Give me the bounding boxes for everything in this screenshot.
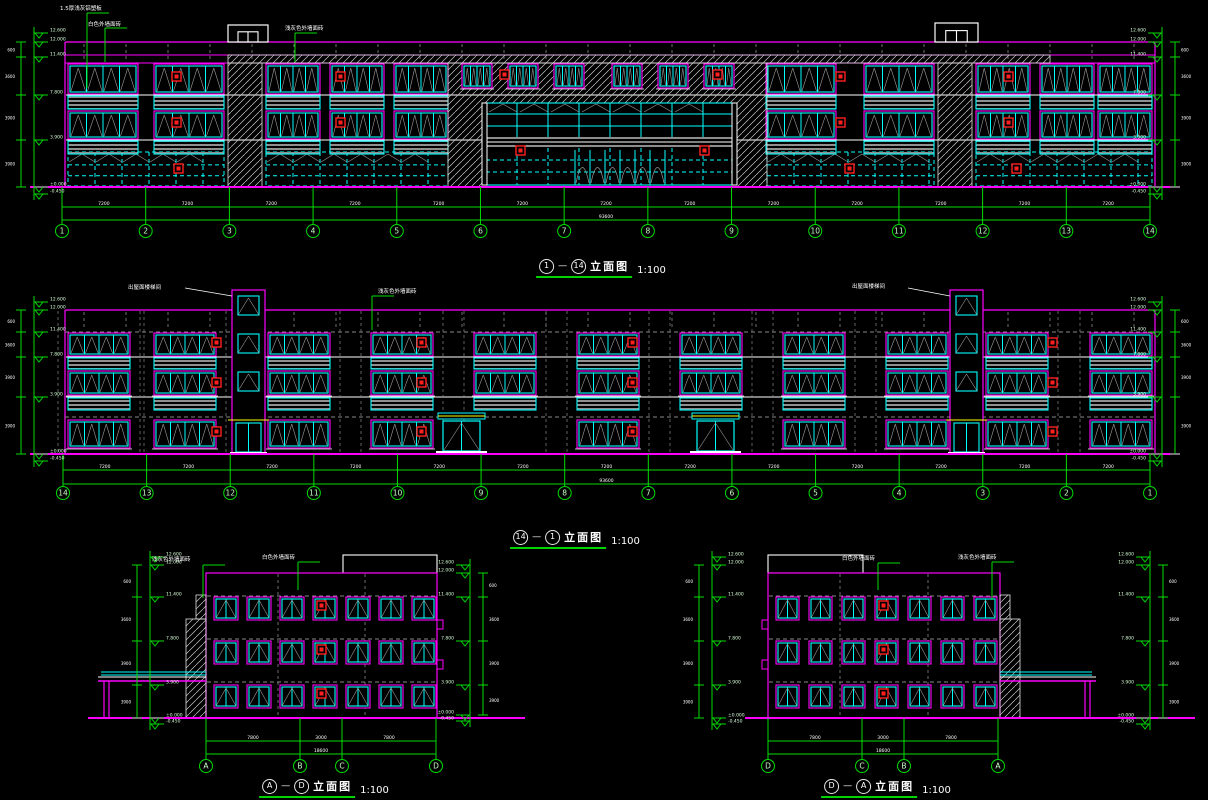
svg-text:3.900: 3.900 <box>1133 135 1146 141</box>
svg-text:7800: 7800 <box>809 735 821 741</box>
axis-bubble: 1 <box>539 259 554 274</box>
svg-text:600: 600 <box>1181 319 1189 324</box>
svg-text:-0.450: -0.450 <box>1131 189 1146 195</box>
svg-text:11.400: 11.400 <box>50 327 66 333</box>
svg-text:±0.000: ±0.000 <box>437 710 454 716</box>
svg-text:12.600: 12.600 <box>438 560 454 566</box>
svg-text:600: 600 <box>7 48 15 53</box>
svg-text:3600: 3600 <box>5 343 16 348</box>
svg-text:14: 14 <box>58 489 68 498</box>
svg-text:7200: 7200 <box>768 464 780 470</box>
svg-text:A: A <box>995 762 1001 771</box>
svg-text:-0.450: -0.450 <box>439 716 454 722</box>
svg-text:3900: 3900 <box>1169 700 1180 705</box>
elev1-title: 1 — 14 立面图 1:100 <box>536 258 666 278</box>
svg-text:3.900: 3.900 <box>441 680 454 686</box>
svg-text:3900: 3900 <box>5 116 16 121</box>
svg-text:7.800: 7.800 <box>1133 90 1146 96</box>
svg-text:±0.000: ±0.000 <box>50 449 67 455</box>
elevation-scale: 1:100 <box>360 785 389 798</box>
svg-text:±0.000: ±0.000 <box>166 713 183 719</box>
svg-text:±0.000: ±0.000 <box>1129 449 1146 455</box>
svg-text:600: 600 <box>123 579 131 584</box>
svg-text:C: C <box>339 762 344 771</box>
title-dash: — <box>281 781 290 791</box>
elev4-title-underlined: D — A 立面图 <box>821 778 917 798</box>
elev1-title-underlined: 1 — 14 立面图 <box>536 258 632 278</box>
svg-text:-0.450: -0.450 <box>50 189 65 195</box>
svg-text:3: 3 <box>227 227 232 236</box>
axis-bubble: D <box>294 779 309 794</box>
svg-text:3.900: 3.900 <box>166 680 179 686</box>
svg-text:12.600: 12.600 <box>50 28 66 34</box>
svg-text:11: 11 <box>309 489 319 498</box>
svg-text:7.800: 7.800 <box>166 636 179 642</box>
svg-text:7200: 7200 <box>266 201 278 207</box>
svg-text:10: 10 <box>393 489 403 498</box>
svg-text:18600: 18600 <box>876 748 890 754</box>
svg-text:12.000: 12.000 <box>50 305 66 311</box>
svg-text:11.400: 11.400 <box>50 52 66 58</box>
svg-text:7200: 7200 <box>851 201 863 207</box>
svg-text:7800: 7800 <box>383 735 395 741</box>
elevation-scale: 1:100 <box>922 785 951 798</box>
svg-text:3900: 3900 <box>489 698 500 703</box>
svg-text:3600: 3600 <box>1181 343 1192 348</box>
axis-bubble: A <box>856 779 871 794</box>
svg-text:-0.450: -0.450 <box>166 719 181 725</box>
svg-text:9: 9 <box>729 227 734 236</box>
svg-text:浅灰色外墙面砖: 浅灰色外墙面砖 <box>285 24 324 32</box>
svg-text:7.800: 7.800 <box>1121 636 1134 642</box>
svg-text:3900: 3900 <box>1181 162 1192 167</box>
svg-text:3900: 3900 <box>5 375 16 380</box>
svg-text:4: 4 <box>897 489 902 498</box>
svg-text:7200: 7200 <box>1102 464 1114 470</box>
svg-text:9: 9 <box>479 489 484 498</box>
svg-text:600: 600 <box>489 583 497 588</box>
svg-text:浅灰色外墙面砖: 浅灰色外墙面砖 <box>152 555 191 563</box>
svg-text:7200: 7200 <box>434 464 446 470</box>
svg-text:7.800: 7.800 <box>728 636 741 642</box>
svg-text:3900: 3900 <box>5 162 16 167</box>
svg-text:600: 600 <box>7 319 15 324</box>
svg-text:11.400: 11.400 <box>1130 327 1146 333</box>
svg-text:浅灰色外墙面砖: 浅灰色外墙面砖 <box>958 553 997 561</box>
svg-text:18600: 18600 <box>314 748 328 754</box>
svg-text:3600: 3600 <box>1169 617 1180 622</box>
svg-text:D: D <box>433 762 439 771</box>
svg-text:12.000: 12.000 <box>728 560 744 566</box>
elev3-title-underlined: A — D 立面图 <box>259 778 355 798</box>
svg-text:7200: 7200 <box>183 464 195 470</box>
svg-text:7.800: 7.800 <box>50 352 63 358</box>
elevation-d-a: DCBA7800300078001860012.60012.00011.4007… <box>683 551 1195 773</box>
svg-text:12.000: 12.000 <box>1130 37 1146 43</box>
elevation-caption: 立面图 <box>313 778 352 794</box>
elev3-title: A — D 立面图 1:100 <box>259 778 389 798</box>
elev4-title: D — A 立面图 1:100 <box>821 778 951 798</box>
svg-text:出屋面楼梯间: 出屋面楼梯间 <box>128 283 161 291</box>
svg-text:3900: 3900 <box>1169 661 1180 666</box>
svg-text:-0.450: -0.450 <box>1131 456 1146 462</box>
svg-text:12.600: 12.600 <box>728 552 744 558</box>
svg-text:7800: 7800 <box>247 735 259 741</box>
svg-text:3600: 3600 <box>5 74 16 79</box>
svg-text:7200: 7200 <box>349 201 361 207</box>
svg-text:7.800: 7.800 <box>1133 352 1146 358</box>
elevation-14-1: 1413121110987654321720072007200720072007… <box>5 282 1192 500</box>
svg-text:C: C <box>859 762 864 771</box>
elev2-title-underlined: 14 — 1 立面图 <box>510 529 606 549</box>
svg-text:12.000: 12.000 <box>438 568 454 574</box>
svg-text:7200: 7200 <box>517 464 529 470</box>
svg-text:93600: 93600 <box>599 214 613 220</box>
svg-text:12.000: 12.000 <box>1118 560 1134 566</box>
svg-text:3600: 3600 <box>121 617 132 622</box>
axis-bubble: A <box>262 779 277 794</box>
svg-text:1: 1 <box>1148 489 1153 498</box>
elevation-scale: 1:100 <box>611 536 640 549</box>
svg-text:6: 6 <box>478 227 483 236</box>
svg-text:8: 8 <box>562 489 567 498</box>
svg-text:3000: 3000 <box>877 735 889 741</box>
svg-text:7200: 7200 <box>600 201 612 207</box>
svg-text:11.400: 11.400 <box>438 592 454 598</box>
svg-text:12.000: 12.000 <box>1130 305 1146 311</box>
svg-text:3900: 3900 <box>5 424 16 429</box>
axis-bubble: 14 <box>571 259 586 274</box>
svg-text:-0.450: -0.450 <box>50 456 65 462</box>
svg-text:8: 8 <box>645 227 650 236</box>
svg-text:7200: 7200 <box>350 464 362 470</box>
svg-text:12: 12 <box>978 227 988 236</box>
svg-text:3900: 3900 <box>121 700 132 705</box>
svg-text:12.600: 12.600 <box>1118 552 1134 558</box>
svg-text:3900: 3900 <box>1181 375 1192 380</box>
svg-text:D: D <box>765 762 771 771</box>
svg-text:7200: 7200 <box>684 464 696 470</box>
svg-text:7200: 7200 <box>852 464 864 470</box>
svg-text:5: 5 <box>394 227 399 236</box>
svg-text:4: 4 <box>311 227 316 236</box>
svg-text:7200: 7200 <box>98 201 110 207</box>
svg-text:3900: 3900 <box>683 700 694 705</box>
svg-text:7200: 7200 <box>266 464 278 470</box>
svg-text:3.900: 3.900 <box>50 135 63 141</box>
svg-text:±0.000: ±0.000 <box>1117 713 1134 719</box>
svg-text:7800: 7800 <box>945 735 957 741</box>
elevation-1-14: 1234567891011121314720072007200720072007… <box>5 4 1192 238</box>
svg-text:3900: 3900 <box>683 661 694 666</box>
svg-text:600: 600 <box>685 579 693 584</box>
svg-text:1.5厚浅灰铝塑板: 1.5厚浅灰铝塑板 <box>60 4 102 12</box>
svg-text:白色外墙面砖: 白色外墙面砖 <box>88 20 122 28</box>
svg-text:11.400: 11.400 <box>1130 52 1146 58</box>
svg-text:7200: 7200 <box>517 201 529 207</box>
svg-text:7200: 7200 <box>1102 201 1114 207</box>
svg-text:B: B <box>901 762 906 771</box>
svg-text:±0.000: ±0.000 <box>1129 182 1146 188</box>
svg-text:浅灰色外墙面砖: 浅灰色外墙面砖 <box>378 287 417 295</box>
svg-text:3900: 3900 <box>489 661 500 666</box>
svg-text:11.400: 11.400 <box>166 592 182 598</box>
svg-text:3600: 3600 <box>1181 74 1192 79</box>
svg-text:3900: 3900 <box>1181 116 1192 121</box>
svg-text:7200: 7200 <box>182 201 194 207</box>
svg-text:7200: 7200 <box>768 201 780 207</box>
svg-text:7200: 7200 <box>601 464 613 470</box>
svg-text:7: 7 <box>646 489 651 498</box>
title-dash: — <box>843 781 852 791</box>
svg-text:2: 2 <box>1064 489 1069 498</box>
axis-bubble: 1 <box>545 530 560 545</box>
svg-text:12.600: 12.600 <box>1130 28 1146 34</box>
svg-text:3.900: 3.900 <box>728 680 741 686</box>
svg-text:7200: 7200 <box>935 201 947 207</box>
svg-text:5: 5 <box>813 489 818 498</box>
svg-text:3900: 3900 <box>1181 424 1192 429</box>
svg-text:11.400: 11.400 <box>728 592 744 598</box>
svg-text:±0.000: ±0.000 <box>728 713 745 719</box>
elevation-drawing: 1234567891011121314720072007200720072007… <box>0 0 1208 800</box>
svg-text:出屋面楼梯间: 出屋面楼梯间 <box>852 282 885 290</box>
svg-text:7: 7 <box>562 227 567 236</box>
svg-text:3600: 3600 <box>489 617 500 622</box>
svg-text:7200: 7200 <box>99 464 111 470</box>
svg-text:7200: 7200 <box>433 201 445 207</box>
svg-text:6: 6 <box>730 489 735 498</box>
svg-text:12.000: 12.000 <box>50 37 66 43</box>
svg-text:3600: 3600 <box>683 617 694 622</box>
svg-text:7.800: 7.800 <box>441 636 454 642</box>
svg-text:7200: 7200 <box>935 464 947 470</box>
svg-text:7.800: 7.800 <box>50 90 63 96</box>
svg-text:13: 13 <box>1062 227 1072 236</box>
elev2-title: 14 — 1 立面图 1:100 <box>510 529 640 549</box>
axis-bubble: D <box>824 779 839 794</box>
svg-text:3000: 3000 <box>315 735 327 741</box>
elevation-caption: 立面图 <box>875 778 914 794</box>
svg-text:11.400: 11.400 <box>1118 592 1134 598</box>
svg-text:12: 12 <box>225 489 235 498</box>
svg-text:3: 3 <box>980 489 985 498</box>
svg-text:3.900: 3.900 <box>1121 680 1134 686</box>
svg-text:白色外墙面砖: 白色外墙面砖 <box>842 554 876 562</box>
title-dash: — <box>558 261 567 271</box>
svg-text:A: A <box>203 762 209 771</box>
cad-canvas: 1234567891011121314720072007200720072007… <box>0 0 1208 800</box>
svg-text:11: 11 <box>894 227 904 236</box>
elevation-scale: 1:100 <box>637 265 666 278</box>
svg-text:93600: 93600 <box>599 478 613 484</box>
svg-text:7200: 7200 <box>684 201 696 207</box>
svg-text:3900: 3900 <box>121 661 132 666</box>
axis-bubble: 14 <box>513 530 528 545</box>
svg-text:7200: 7200 <box>1019 201 1031 207</box>
svg-text:2: 2 <box>143 227 148 236</box>
svg-text:7200: 7200 <box>1019 464 1031 470</box>
svg-text:-0.450: -0.450 <box>728 719 743 725</box>
svg-text:14: 14 <box>1145 227 1155 236</box>
svg-text:13: 13 <box>142 489 152 498</box>
svg-text:1: 1 <box>60 227 65 236</box>
svg-text:10: 10 <box>810 227 820 236</box>
svg-text:12.600: 12.600 <box>50 297 66 303</box>
svg-text:600: 600 <box>1181 48 1189 53</box>
svg-text:-0.450: -0.450 <box>1119 719 1134 725</box>
svg-text:3.900: 3.900 <box>1133 392 1146 398</box>
elevation-caption: 立面图 <box>590 258 629 274</box>
svg-text:3.900: 3.900 <box>50 392 63 398</box>
elevation-caption: 立面图 <box>564 529 603 545</box>
svg-text:12.600: 12.600 <box>1130 297 1146 303</box>
svg-text:±0.000: ±0.000 <box>50 182 67 188</box>
svg-text:B: B <box>297 762 302 771</box>
svg-text:600: 600 <box>1169 579 1177 584</box>
elevation-a-d: ABCD7800300078001860012.60012.00011.4007… <box>88 551 525 773</box>
svg-text:白色外墙面砖: 白色外墙面砖 <box>262 553 296 561</box>
title-dash: — <box>532 532 541 542</box>
